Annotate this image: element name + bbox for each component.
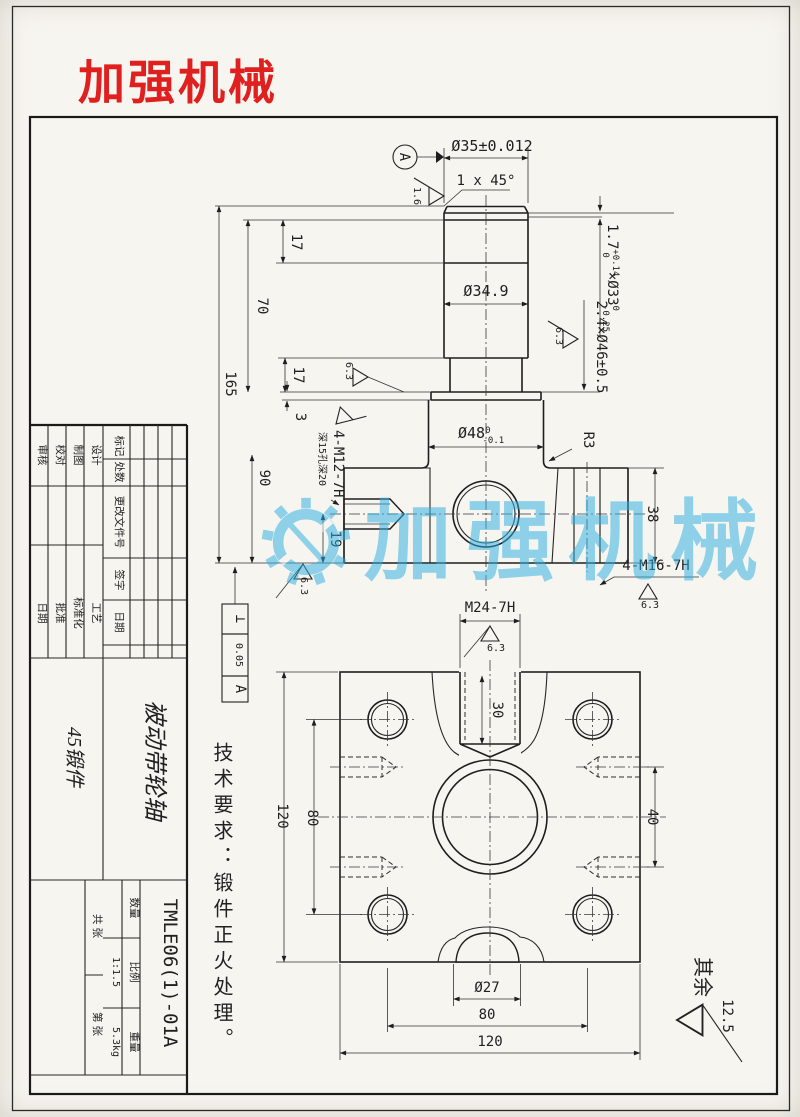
- dim-80-bottom: 80: [479, 1007, 496, 1023]
- label-weight: 重量: [128, 1032, 141, 1054]
- dim-phi35: Ø35±0.012: [451, 137, 532, 155]
- label-process: 工艺: [90, 603, 102, 624]
- technical-requirements: 技术要求：锻件正火处理。: [207, 742, 236, 1062]
- dim-38: 38: [644, 506, 660, 523]
- ra16-value: 1.6: [411, 187, 422, 205]
- label-sheets: 共 张: [91, 914, 103, 938]
- label-approve: 批准: [54, 603, 67, 624]
- dim-m24: M24-7H: [465, 600, 516, 616]
- title-block: 标记 处数 更改文件号 签字 日期 设计 制图 校对 审核 工艺 标准化 批准 …: [30, 425, 187, 1095]
- label-count: 处数: [113, 462, 126, 483]
- ra63-m16: 6.3: [641, 600, 659, 611]
- label-audit: 审核: [36, 445, 49, 466]
- label-doc-no: 更改文件号: [113, 496, 126, 549]
- phi27-hole: [456, 933, 519, 962]
- surface-finish-m16-icon: [639, 584, 657, 599]
- label-qty: 数量: [128, 898, 141, 919]
- material: 45锻件: [63, 727, 85, 789]
- label-scale: 比例: [128, 962, 141, 983]
- dim-m12-note: 深15孔深20: [316, 432, 328, 486]
- weight-value: 5.3kg: [110, 1027, 121, 1057]
- dim-r3: R3: [580, 432, 596, 449]
- dim-19: 19: [327, 531, 343, 548]
- front-view-dimensions: Ø35±0.012 1 x 45° A 1.6 1.7+0.140×Ø330-0…: [215, 137, 699, 702]
- dim-30: 30: [489, 702, 505, 719]
- dim-phi349: Ø34.9: [463, 282, 508, 300]
- hatch-right-inner: [552, 468, 574, 563]
- dim-90: 90: [256, 470, 272, 487]
- dim-m16: 4-M16-7H: [622, 558, 689, 574]
- part-name: 被动带轮轴: [141, 700, 168, 823]
- engineering-drawing-page: 标记 处数 更改文件号 签字 日期 设计 制图 校对 审核 工艺 标准化 批准 …: [0, 0, 800, 1117]
- rest-value: 12.5: [719, 999, 735, 1033]
- label-draft: 制图: [72, 445, 85, 466]
- dim-groove2: 2.4×Ø46±0.5: [593, 301, 609, 394]
- surface-finish-shaft-icon: [353, 368, 368, 386]
- dim-165: 165: [222, 371, 238, 396]
- tol-datum: A: [232, 685, 248, 694]
- label-sheet-no: 第 张: [91, 1012, 104, 1036]
- label-design: 设计: [90, 445, 103, 466]
- label-standardize: 标准化: [72, 597, 85, 629]
- ra63-m24: 6.3: [487, 643, 505, 654]
- label-mark: 标记: [113, 436, 125, 457]
- ra63-shaft: 6.3: [343, 362, 354, 380]
- company-logo: 加强机械: [78, 44, 278, 113]
- dim-120-left: 120: [274, 803, 290, 828]
- tol-symbol: ⊥: [232, 615, 248, 623]
- ra63-base: 6.3: [298, 577, 309, 595]
- dim-70: 70: [254, 298, 270, 315]
- ra63-groove: 6.3: [553, 327, 564, 345]
- dim-m12: 4-M12-7H: [330, 430, 346, 497]
- drawing-canvas: 标记 处数 更改文件号 签字 日期 设计 制图 校对 审核 工艺 标准化 批准 …: [0, 0, 800, 1117]
- surface-finish-rest-icon: [677, 1005, 703, 1036]
- dim-chamfer: 1 x 45°: [456, 173, 515, 189]
- label-date2: 日期: [36, 603, 48, 624]
- dim-17b: 17: [290, 367, 306, 384]
- datum-triangle: [436, 151, 444, 163]
- label-date: 日期: [113, 612, 125, 633]
- dim-3: 3: [292, 413, 308, 421]
- label-sign: 签字: [113, 570, 126, 591]
- drawing-number: TMLE06(1)-01A: [159, 899, 181, 1048]
- label-check: 校对: [54, 445, 67, 466]
- scale-value: 1:1.5: [110, 957, 121, 987]
- tolerance-frame: ⊥ 0.05 A: [222, 567, 248, 702]
- dim-phi27: Ø27: [474, 980, 499, 996]
- tol-value: 0.05: [233, 643, 244, 667]
- plan-view-dimensions: M24-7H 6.3 30 120 80 40 Ø27 80 120: [274, 600, 664, 1060]
- hatch-right-outer: [600, 468, 628, 563]
- dim-phi48: Ø480-0.1: [458, 424, 504, 446]
- dim-120-bottom: 120: [477, 1034, 502, 1050]
- dim-40: 40: [644, 809, 660, 826]
- rest-roughness: 其余 12.5: [677, 957, 742, 1062]
- rest-label: 其余: [691, 957, 714, 997]
- datum-letter: A: [396, 153, 412, 162]
- dim-17a: 17: [288, 234, 304, 251]
- dim-80-left: 80: [304, 810, 320, 827]
